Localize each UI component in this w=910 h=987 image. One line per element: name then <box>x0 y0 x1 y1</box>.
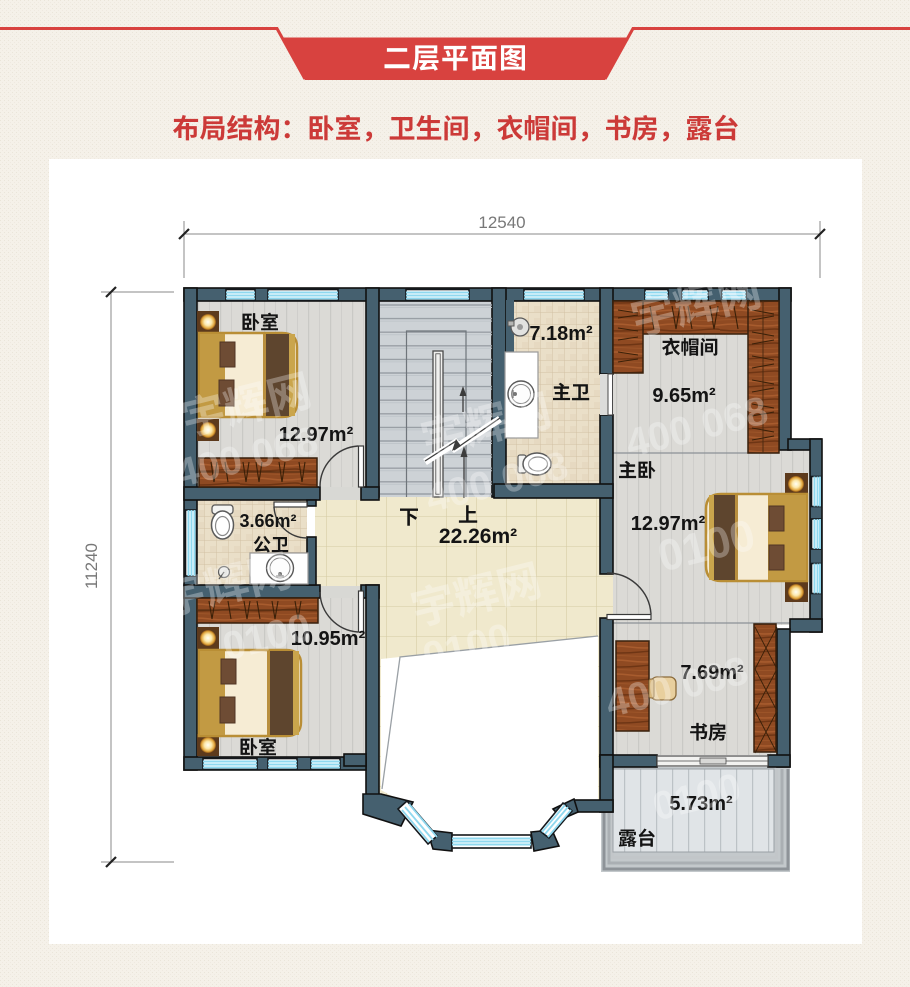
svg-text:7.18m²: 7.18m² <box>529 323 593 345</box>
svg-text:3.66m²: 3.66m² <box>239 511 296 531</box>
svg-text:12540: 12540 <box>478 213 525 232</box>
svg-text:22.26m²: 22.26m² <box>439 525 517 548</box>
svg-text:11240: 11240 <box>82 543 101 589</box>
